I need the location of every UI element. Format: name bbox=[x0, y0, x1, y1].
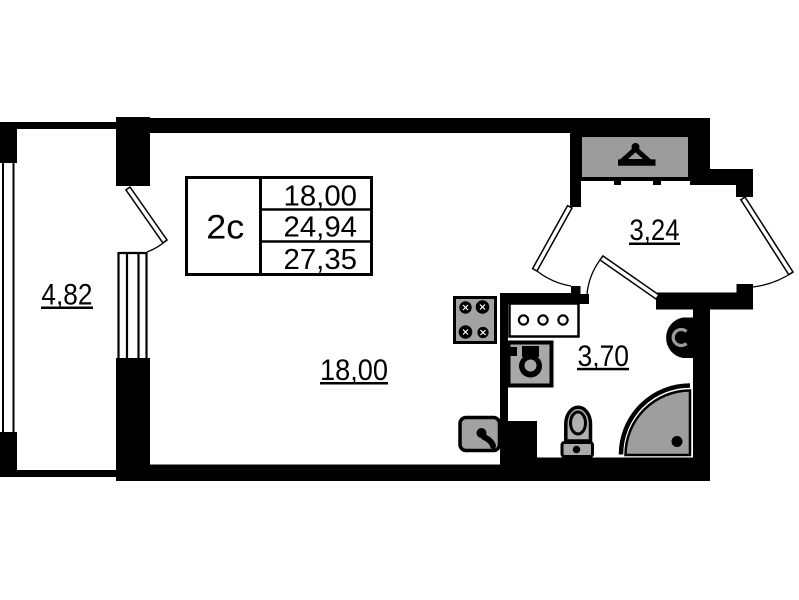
svg-text:3,24: 3,24 bbox=[630, 214, 680, 247]
svg-text:27,35: 27,35 bbox=[284, 244, 358, 276]
svg-text:2c: 2c bbox=[206, 209, 244, 247]
svg-text:24,94: 24,94 bbox=[284, 212, 358, 244]
svg-text:18,00: 18,00 bbox=[284, 181, 358, 213]
